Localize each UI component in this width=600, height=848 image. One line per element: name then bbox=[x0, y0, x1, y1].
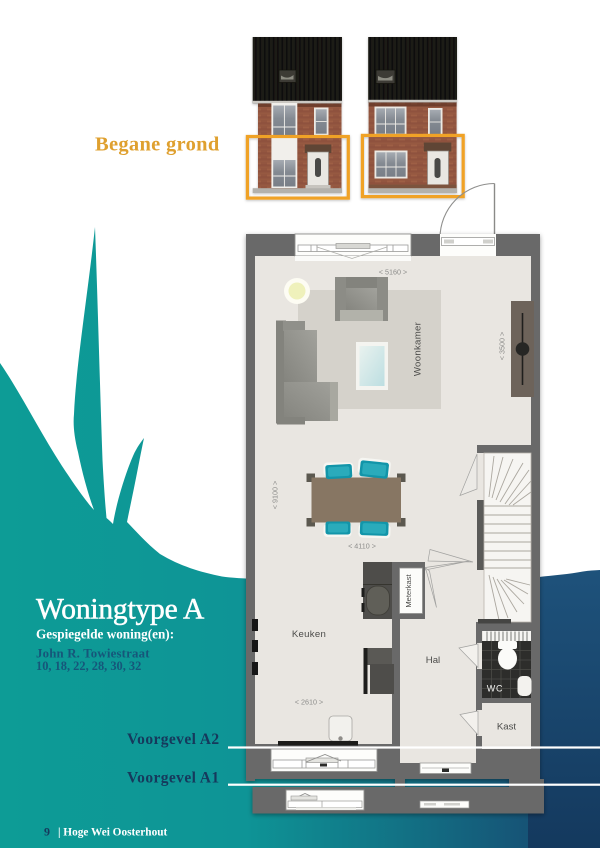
svg-text:< 4110 >: < 4110 > bbox=[348, 542, 376, 551]
svg-text:< 9100 >: < 9100 > bbox=[271, 481, 280, 509]
svg-text:Voorgevel A2: Voorgevel A2 bbox=[127, 731, 219, 748]
svg-text:< 5160 >: < 5160 > bbox=[379, 268, 407, 277]
svg-text:10, 18, 22, 28, 30, 32: 10, 18, 22, 28, 30, 32 bbox=[36, 659, 141, 673]
svg-text:Woningtype A: Woningtype A bbox=[36, 594, 205, 626]
svg-text:Gespiegelde woning(en):: Gespiegelde woning(en): bbox=[36, 627, 174, 642]
svg-text:| Hoge Wei Oosterhout: | Hoge Wei Oosterhout bbox=[58, 827, 168, 839]
svg-text:Kast: Kast bbox=[497, 722, 517, 733]
svg-text:Begane grond: Begane grond bbox=[95, 134, 220, 156]
svg-text:Hal: Hal bbox=[426, 655, 440, 666]
svg-text:< 2610 >: < 2610 > bbox=[295, 698, 323, 707]
svg-text:Meterkast: Meterkast bbox=[404, 573, 413, 607]
svg-text:WC: WC bbox=[487, 684, 504, 694]
svg-text:Voorgevel A1: Voorgevel A1 bbox=[127, 770, 219, 787]
svg-text:Woonkamer: Woonkamer bbox=[413, 321, 424, 376]
svg-text:9: 9 bbox=[44, 825, 50, 839]
svg-text:< 3500 >: < 3500 > bbox=[498, 332, 507, 360]
svg-text:Keuken: Keuken bbox=[292, 629, 326, 640]
